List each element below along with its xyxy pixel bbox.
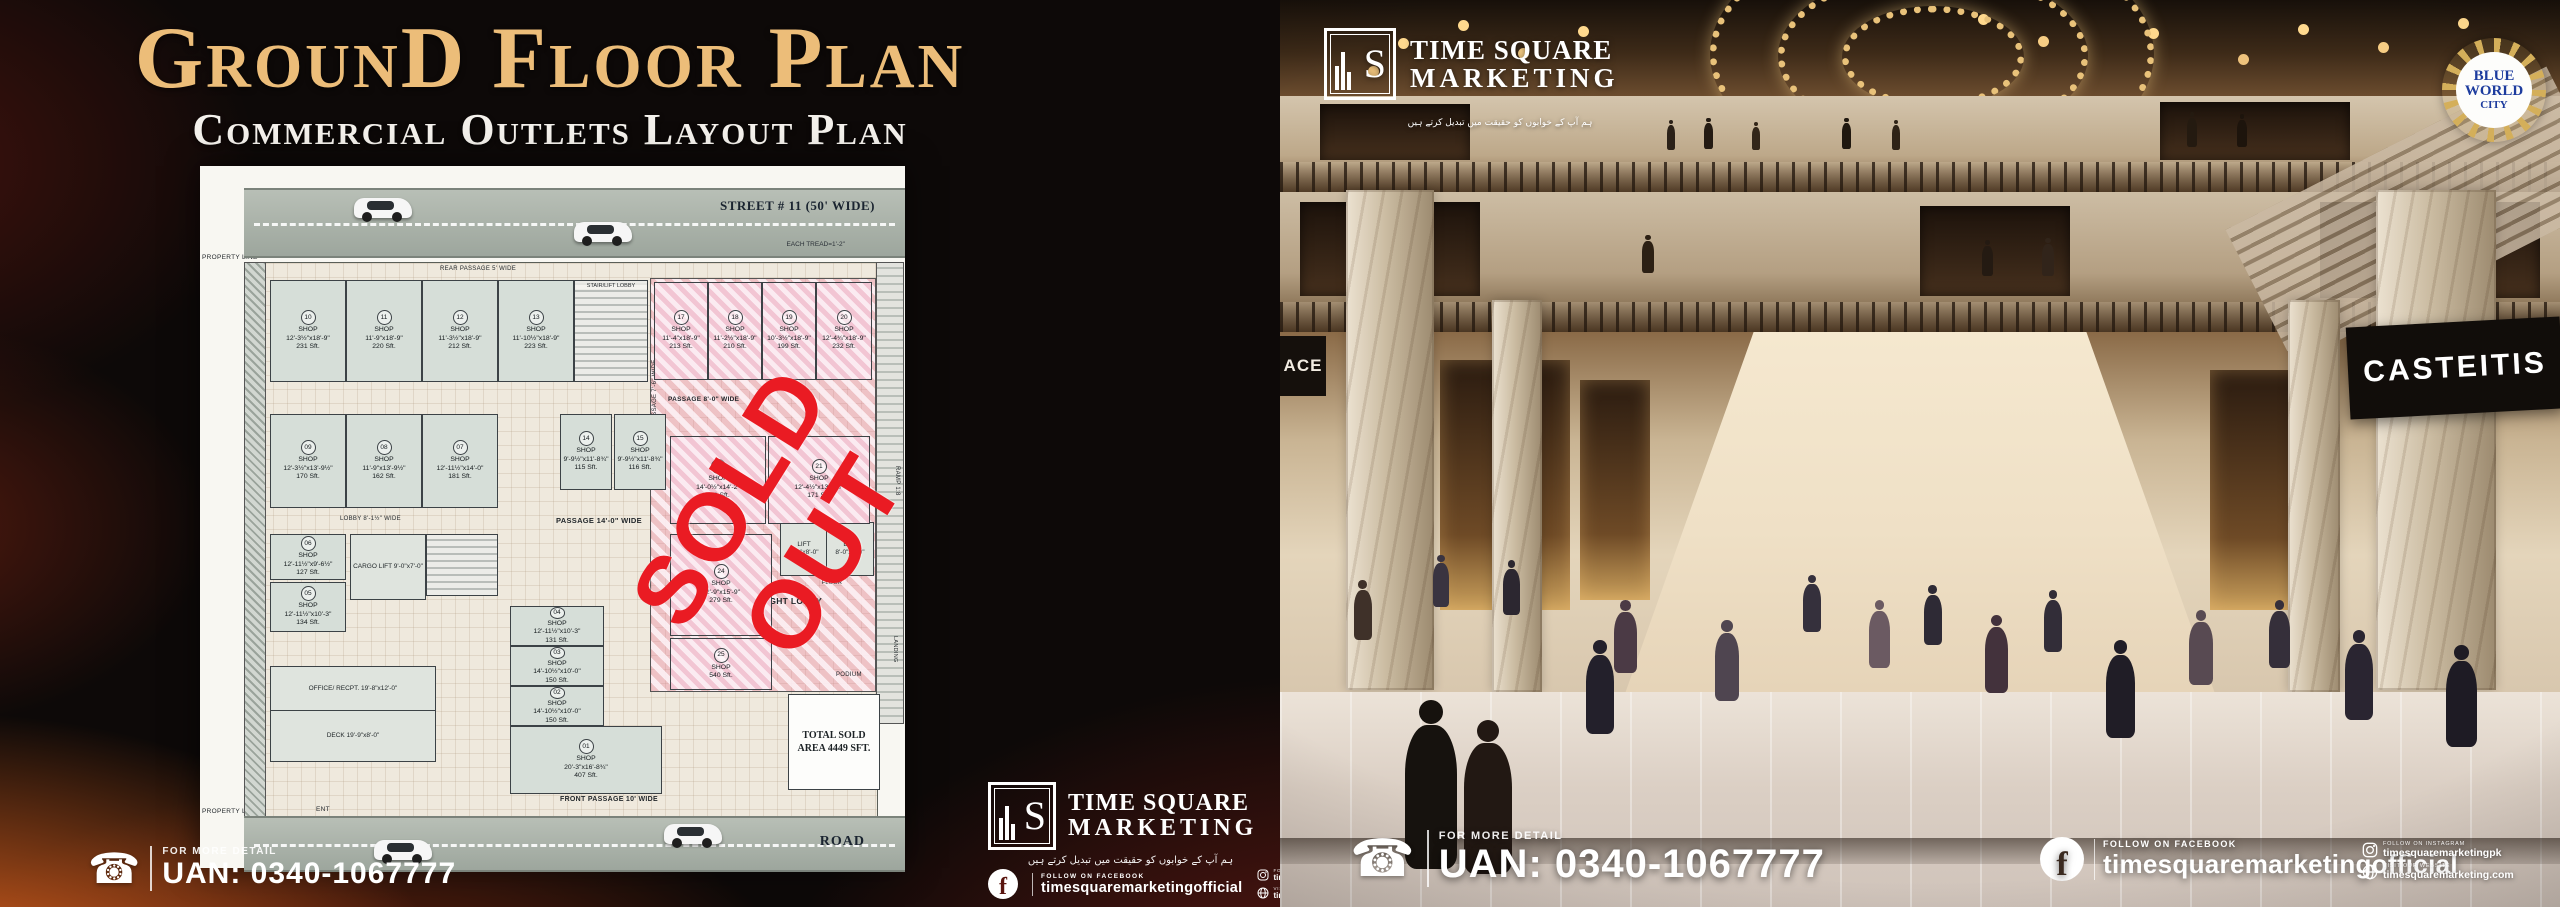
social-row-left: f FOLLOW ON FACEBOOK timesquaremarketing… <box>988 868 1280 900</box>
floor-plan: PROPERTY LINE PROPERTY LINE STREET # 11 … <box>200 166 905 868</box>
shop-box: 15SHOP9'-9½"x11'-8¾"116 Sft. <box>614 414 666 490</box>
shop-box: 17SHOP11'-4"x18'-9"213 Sft. <box>654 282 708 380</box>
website-handle: timesquaremarketing.com <box>2383 869 2514 881</box>
person-silhouette <box>1840 118 1853 154</box>
street-label: STREET # 11 (50' WIDE) <box>720 198 875 214</box>
contact-caption: FOR MORE DETAIL <box>162 846 456 857</box>
globe-icon <box>1257 887 1269 899</box>
badge-line1: BLUE <box>2474 69 2515 84</box>
person-silhouette <box>1920 585 1945 655</box>
rear-passage-label: REAR PASSAGE 5' WIDE <box>440 266 516 272</box>
person-silhouette <box>1980 615 2013 707</box>
street-top: STREET # 11 (50' WIDE) EACH TREAD=1'-2" <box>244 188 905 258</box>
shop-box: 11SHOP11'-9"x18'-9"220 Sft. <box>346 280 422 382</box>
left-panel: GrounD Floor Plan Commercial Outlets Lay… <box>0 0 1280 907</box>
facebook-icon: f <box>988 869 1018 899</box>
person-silhouette <box>1980 240 1995 282</box>
shop-box: 10SHOP12'-3½"x18'-9"231 Sft. <box>270 280 346 382</box>
instagram-icon <box>2362 842 2378 858</box>
person-silhouette <box>1865 600 1894 680</box>
person-silhouette <box>2440 645 2483 765</box>
car-icon <box>664 824 722 844</box>
tsm-monogram: S <box>988 782 1056 850</box>
landing-label: LANDING <box>892 636 898 663</box>
person-silhouette <box>2100 640 2141 755</box>
instagram-caption: FOLLOW ON INSTAGRAM <box>2383 841 2501 847</box>
facebook-caption: FOLLOW ON FACEBOOK <box>1041 873 1243 880</box>
shop-box: 07SHOP12'-11½"x14'-0"181 Sft. <box>422 414 498 508</box>
brand-urdu-tagline: ہم آپ کے خوابوں کو حقیقت میں تبدیل کرتے … <box>988 855 1273 866</box>
instagram-icon <box>1257 869 1269 881</box>
brand-name-line1: TIME SQUARE <box>1410 36 1619 64</box>
shop-box: 13SHOP11'-10½"x18'-9"223 Sft. <box>498 280 574 382</box>
social-mini-right: FOLLOW ON INSTAGRAM timesquaremarketingp… <box>2362 841 2514 881</box>
lobby-8-label: LOBBY 8'-1½" WIDE <box>340 516 401 522</box>
buildings-icon <box>999 806 1015 840</box>
person-silhouette <box>1710 620 1744 715</box>
marble-column <box>1492 300 1542 692</box>
person-silhouette <box>2265 600 2294 680</box>
person-silhouette <box>2235 114 2249 152</box>
monogram-letter: S <box>1364 46 1386 82</box>
contact-caption: FOR MORE DETAIL <box>1439 830 1825 842</box>
partial-store-sign: ACE <box>1280 336 1326 396</box>
globe-icon <box>2362 864 2378 880</box>
office-reception: OFFICE/ RECPT. 19'-8"x12'-0" <box>270 666 436 712</box>
person-silhouette <box>1890 120 1902 154</box>
person-silhouette <box>2185 610 2217 698</box>
page-title: GrounD Floor Plan <box>70 8 1030 109</box>
road-label: ROAD <box>820 834 865 850</box>
person-silhouette <box>2185 112 2199 152</box>
person-silhouette <box>1702 118 1715 154</box>
tsm-logo-top: S TIME SQUARE MARKETING <box>1324 28 1619 100</box>
person-silhouette <box>2040 590 2066 662</box>
person-silhouette <box>1500 560 1523 624</box>
stair-lift-lobby: STAIR/LIFT LOBBY <box>574 280 648 382</box>
deck: DECK 19'-9"x8'-0" <box>270 710 436 762</box>
shop-box: 06SHOP12'-11½"x9'-6½"127 Sft. <box>270 534 346 580</box>
ceiling-lights <box>1280 0 1287 7</box>
storefront-window <box>1580 380 1650 600</box>
person-silhouette <box>2040 238 2056 282</box>
brand-logo-block: S TIME SQUARE MARKETING ہم آپ کے خوابوں … <box>988 782 1273 866</box>
tsm-monogram: S <box>1324 28 1396 100</box>
shop-box: 09SHOP12'-3½"x13'-9½"170 Sft. <box>270 414 346 508</box>
phone-icon: ☎ <box>1350 833 1415 885</box>
passage-14-label: PASSAGE 14'-0" WIDE <box>556 516 642 525</box>
blue-world-city-badge: BLUE WORLD CITY <box>2442 38 2546 142</box>
car-icon <box>354 198 412 218</box>
page-subtitle: Commercial Outlets Layout Plan <box>70 104 1030 155</box>
poster-canvas: GrounD Floor Plan Commercial Outlets Lay… <box>0 0 2560 907</box>
contact-uan: UAN: 0340-1067777 <box>1439 842 1825 887</box>
shop-box: 14SHOP9'-9½"x11'-8¾"115 Sft. <box>560 414 612 490</box>
cargo-lift: CARGO LIFT 9'-0"x7'-0" <box>350 534 426 600</box>
badge-line2: WORLD <box>2465 84 2523 99</box>
person-silhouette <box>1350 580 1375 650</box>
website-caption: VISIT OUR WEBSITE <box>2383 863 2514 869</box>
mall-photo-panel: ACE CASTEITIS S TIME SQUARE MARKETING ہم… <box>1280 0 2560 907</box>
buildings-icon <box>1335 52 1351 90</box>
tread-label: EACH TREAD=1'-2" <box>786 241 845 248</box>
contact-block-right: ☎ FOR MORE DETAIL UAN: 0340-1067777 <box>1350 830 1825 887</box>
contact-block-left: ☎ FOR MORE DETAIL UAN: 0340-1067777 <box>88 846 456 891</box>
person-silhouette <box>1580 640 1620 750</box>
shop-box: 05SHOP12'-11½"x10'-3"134 Sft. <box>270 582 346 632</box>
badge-line3: CITY <box>2480 100 2508 111</box>
facebook-handle: timesquaremarketingofficial <box>1041 880 1243 896</box>
marble-column <box>2288 300 2340 692</box>
person-silhouette <box>1640 235 1656 279</box>
shop-box: 12SHOP11'-3½"x18'-9"212 Sft. <box>422 280 498 382</box>
tsm-urdu-tagline: ہم آپ کے خوابوں کو حقیقت میں تبدیل کرتے … <box>1400 118 1600 128</box>
car-icon <box>574 222 632 242</box>
brand-name-line2: MARKETING <box>1068 816 1257 841</box>
brand-name-line2: MARKETING <box>1410 64 1619 92</box>
chandelier-ring <box>1842 6 2024 108</box>
person-silhouette <box>1430 555 1452 615</box>
phone-icon: ☎ <box>88 848 140 890</box>
front-passage-label: FRONT PASSAGE 10' WIDE <box>560 796 658 803</box>
contact-uan: UAN: 0340-1067777 <box>162 857 456 891</box>
total-sold-area: TOTAL SOLD AREA 4449 SFT. <box>788 694 880 790</box>
lane-divider <box>254 223 895 226</box>
podium-label: PODIUM <box>836 672 862 678</box>
shop-box: 08SHOP11'-9"x13'-9½"162 Sft. <box>346 414 422 508</box>
person-silhouette <box>1750 122 1762 154</box>
instagram-handle: timesquaremarketingpk <box>2383 847 2501 859</box>
stairs <box>426 534 498 596</box>
person-silhouette <box>2340 630 2378 735</box>
marble-column <box>2376 190 2496 690</box>
monogram-letter: S <box>1024 798 1046 834</box>
store-sign-casteitis: CASTEITIS <box>2346 316 2560 419</box>
brand-name-line1: TIME SQUARE <box>1068 791 1257 816</box>
person-silhouette <box>1665 120 1677 154</box>
facebook-icon: f <box>2040 837 2084 881</box>
boundary-wall <box>244 262 266 820</box>
entrance-label: ENT <box>316 806 330 813</box>
person-silhouette <box>1800 575 1824 641</box>
